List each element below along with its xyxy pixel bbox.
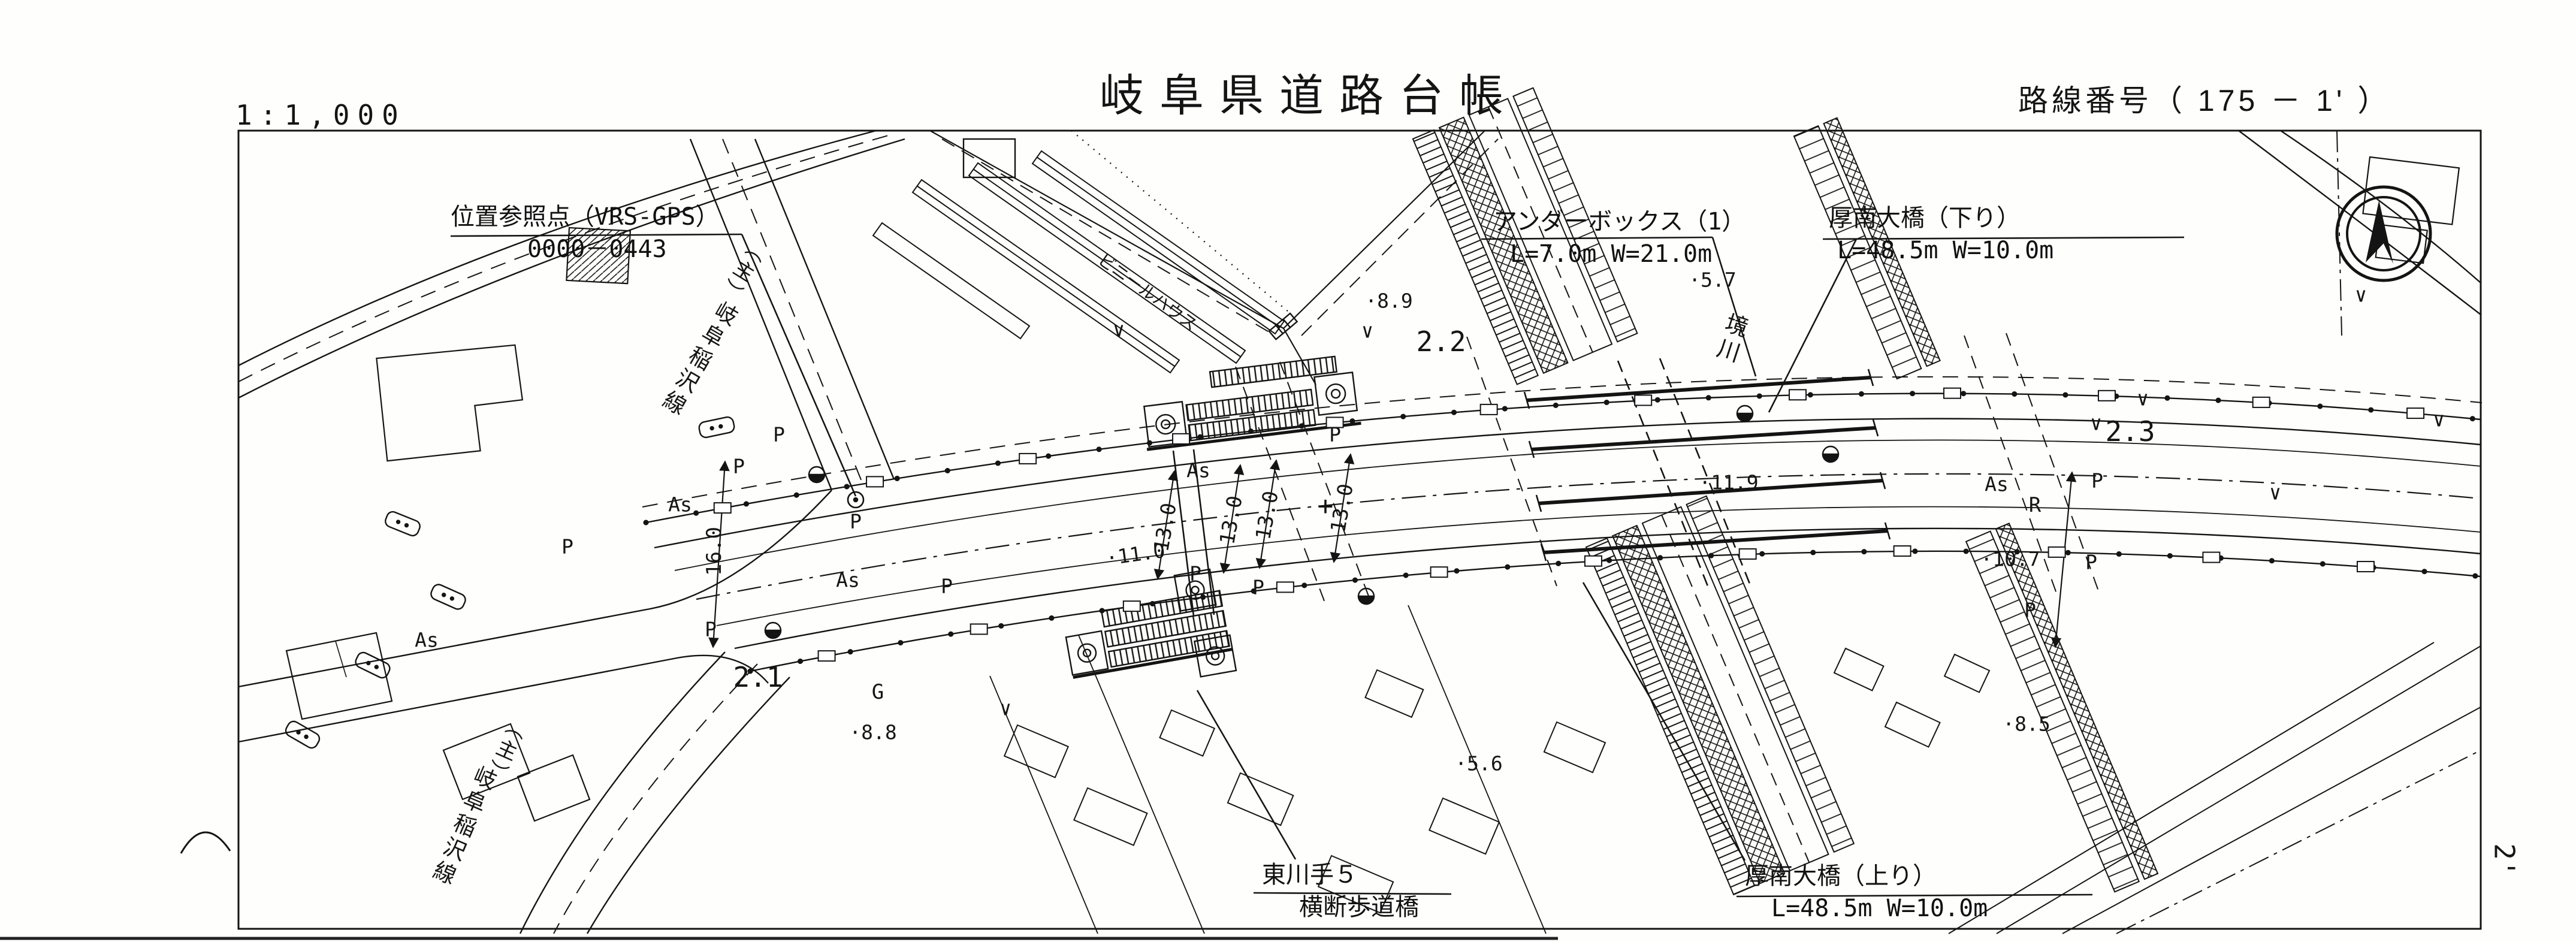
spot-height: ·5.6 xyxy=(1455,754,1502,774)
guardrail-post-marker xyxy=(1635,395,1651,405)
guardrail-post-marker xyxy=(714,503,731,513)
map-drawing xyxy=(0,0,2576,942)
footbridge-structure xyxy=(1059,354,1361,699)
callout-bridge-up-title: 厚南大橋（上り） xyxy=(1745,861,1988,893)
pole-marker: P xyxy=(773,425,785,445)
spot-height: ·8.5 xyxy=(2003,714,2050,734)
guardrail-post-marker xyxy=(2357,561,2374,572)
guardrail-post-marker xyxy=(1431,567,1448,577)
bank-height: 2.1 xyxy=(733,663,783,691)
main-road xyxy=(642,377,2482,671)
bank-height: 2.3 xyxy=(2105,418,2155,445)
tree-marker: ∨ xyxy=(2269,483,2281,503)
callout-footbridge-detail: 横断歩道橋 xyxy=(1299,892,1419,924)
guardrail-post-marker xyxy=(1789,390,1806,400)
guardrail-post-marker xyxy=(1124,601,1140,611)
north-compass-icon xyxy=(2337,187,2430,280)
tree-marker: ∨ xyxy=(999,699,1011,718)
spot-height: ·8.9 xyxy=(1365,291,1412,311)
surface-label-r: R xyxy=(2029,495,2041,515)
pole-marker: P xyxy=(941,576,953,596)
pole-marker: P xyxy=(1189,564,1201,584)
callout-under-box-detail: L=7.0m W=21.0m xyxy=(1510,238,1745,271)
guardrail-post-marker xyxy=(2253,397,2270,407)
sheet-joint-mark xyxy=(181,832,230,853)
guardrail-posts xyxy=(714,388,2424,661)
callout-footbridge: 東川手５横断歩道橋 xyxy=(1262,859,1419,923)
width-dimension: 16.0 xyxy=(704,527,724,576)
callout-footbridge-leader xyxy=(1197,690,1295,859)
pole-marker: P xyxy=(1329,425,1341,445)
callout-position-reference-title: 位置参照点（VRS-GPS） xyxy=(451,201,720,234)
bank-height: 2.2 xyxy=(1416,328,1466,355)
north-needle xyxy=(2355,200,2393,268)
tree-marker: ∨ xyxy=(1113,320,1125,340)
guardrail-post-marker xyxy=(866,476,883,487)
pole-marker: P xyxy=(705,620,717,639)
callout-bridge-up: 厚南大橋（上り）L=48.5m W=10.0m xyxy=(1745,861,1988,925)
road-ledger-sheet: 1:1,000 岐阜県道路台帳 路線番号（ 175 － 1' ） 2' xyxy=(0,0,2576,942)
tree-marker: ∨ xyxy=(1361,321,1373,341)
guardrail-post-marker xyxy=(1481,404,1497,415)
pole-marker: P xyxy=(2024,600,2036,620)
guardrail-post-marker xyxy=(1740,549,1756,559)
guardrail-post-marker xyxy=(2407,408,2424,418)
spot-height: ·5.7 xyxy=(1689,270,1736,290)
surface-asphalt-label: As xyxy=(415,630,439,650)
guardrail-post-marker xyxy=(2203,552,2219,563)
surface-asphalt-label: As xyxy=(668,495,692,515)
pole-marker: P xyxy=(850,512,862,532)
callout-under-box: アンダーボックス（1）L=7.0m W=21.0m xyxy=(1493,206,1745,270)
surface-asphalt-label: As xyxy=(1186,461,1210,481)
spot-height: ·10.7 xyxy=(1980,549,2040,569)
pole-marker: P xyxy=(561,537,573,557)
survey-cross-mark: + xyxy=(1318,493,1334,520)
callout-position-reference-leader xyxy=(742,234,856,496)
callout-position-reference-detail: 0000－0443 xyxy=(527,234,720,266)
pole-marker: P xyxy=(733,457,745,476)
callout-bridge-down-detail: L=48.5m W=10.0m xyxy=(1837,235,2053,267)
surface-asphalt-label: As xyxy=(1985,475,2009,494)
guardrail-post-marker xyxy=(1944,388,1961,398)
guardrail-post-marker xyxy=(1585,556,1602,566)
guardrail-post-marker xyxy=(2049,547,2065,557)
small-culvert-icon xyxy=(1269,313,1297,339)
pole-marker: P xyxy=(1252,578,1264,597)
surface-asphalt-label: As xyxy=(836,570,860,590)
pole-marker: P xyxy=(2085,552,2097,572)
footbridge-lower-stairs xyxy=(1059,568,1236,699)
guardrail-post-marker xyxy=(2098,391,2115,401)
callout-bridge-down-title: 厚南大橋（下り） xyxy=(1829,203,2053,235)
surface-gravel-label: G xyxy=(872,682,884,702)
guardrail-post-marker xyxy=(1894,546,1911,556)
guardrail-post-marker xyxy=(1173,434,1189,444)
tree-marker: ∨ xyxy=(2090,413,2102,433)
greenhouse-area xyxy=(873,151,1284,373)
footbridge-upper-stairs xyxy=(1138,354,1361,449)
spot-height: ·11.9 xyxy=(1699,473,1758,493)
tree-marker: ∨ xyxy=(2137,389,2149,409)
tree-marker: ∨ xyxy=(2433,410,2445,430)
tree-marker: ∨ xyxy=(2355,285,2367,305)
spot-height: ·8.8 xyxy=(849,723,896,742)
pole-marker: P xyxy=(2091,471,2103,491)
buildings-left xyxy=(286,228,630,821)
guardrail-post-marker xyxy=(1019,454,1036,464)
car-symbols xyxy=(283,416,735,750)
callout-position-reference: 位置参照点（VRS-GPS）0000－0443 xyxy=(451,201,720,265)
callout-bridge-down: 厚南大橋（下り）L=48.5m W=10.0m xyxy=(1829,203,2053,267)
callout-bridge-up-detail: L=48.5m W=10.0m xyxy=(1771,893,1988,925)
guardrail-post-marker xyxy=(971,624,987,634)
callout-under-box-title: アンダーボックス（1） xyxy=(1493,206,1745,238)
guardrail-post-marker xyxy=(819,651,835,661)
callout-footbridge-title: 東川手５ xyxy=(1262,859,1419,892)
guardrail-post-marker xyxy=(1277,582,1294,592)
